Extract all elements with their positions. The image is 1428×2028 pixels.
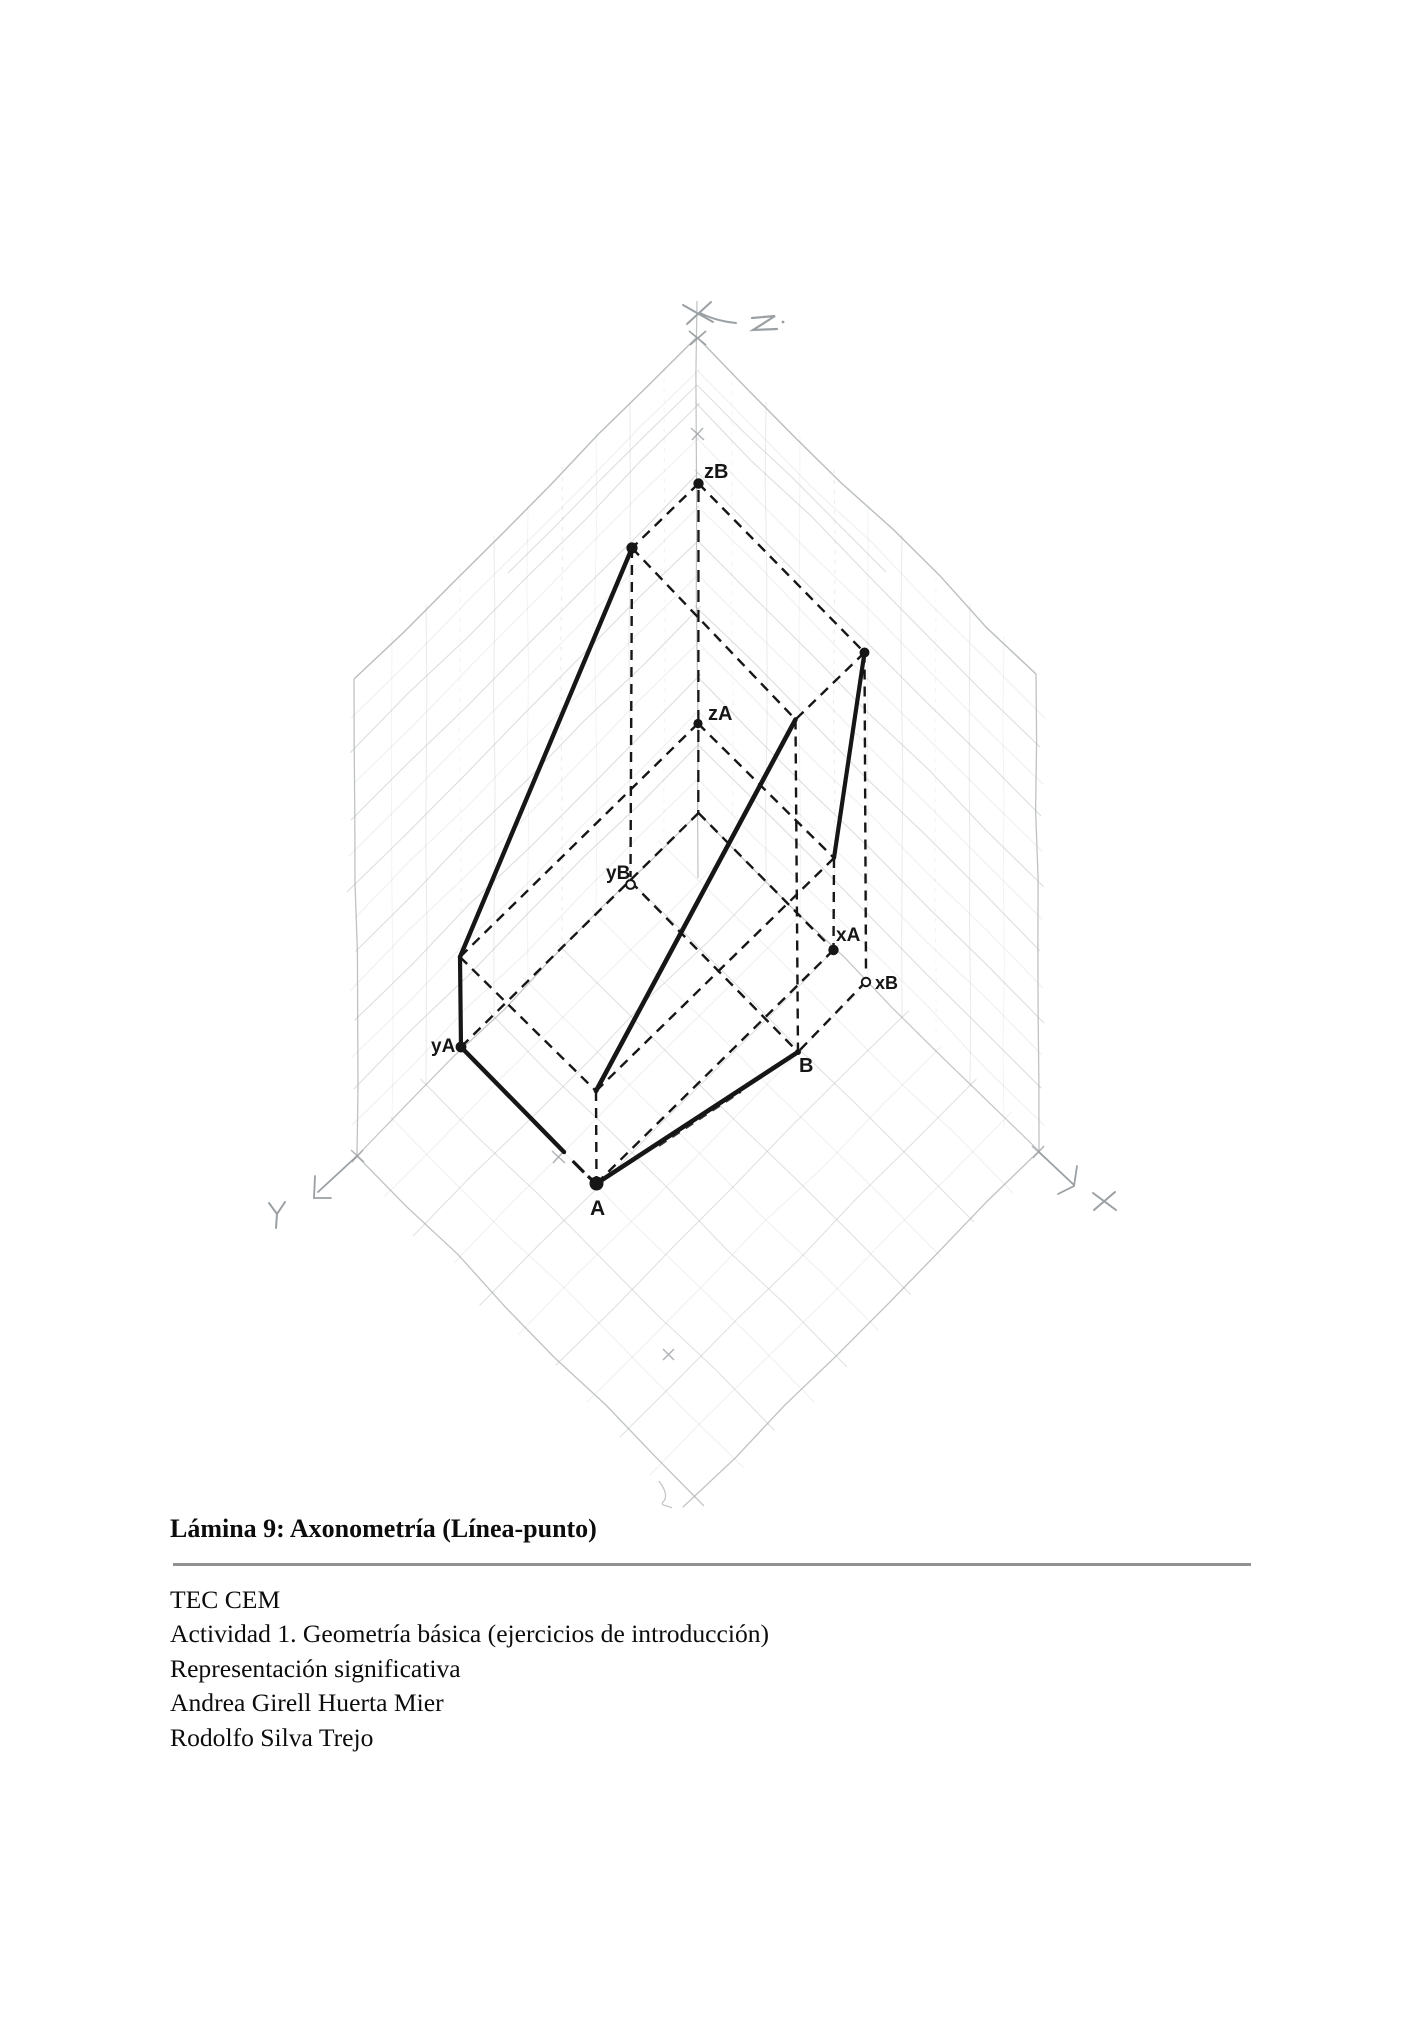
svg-text:xB: xB [875,973,898,993]
svg-text:B: B [799,1055,813,1077]
svg-text:zA: zA [708,703,732,725]
svg-text:xA: xA [836,925,861,946]
svg-text:zB: zB [704,461,728,483]
svg-text:A: A [590,1197,605,1220]
svg-text:yA: yA [431,1036,456,1057]
svg-text:yB: yB [606,863,630,884]
